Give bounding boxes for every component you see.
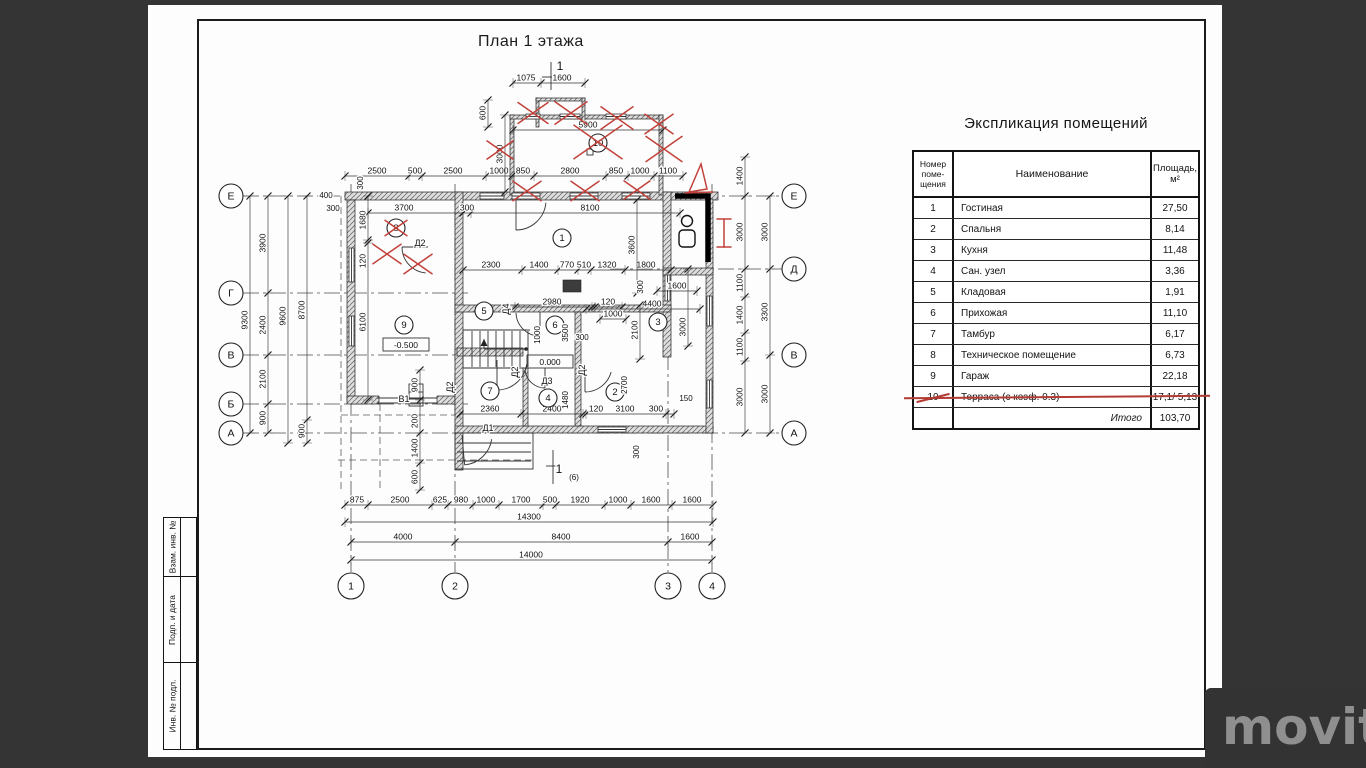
svg-text:1320: 1320 xyxy=(598,260,617,270)
svg-text:4400: 4400 xyxy=(643,299,662,309)
room-area-cell: 1,91 xyxy=(1152,282,1198,302)
svg-text:120: 120 xyxy=(601,297,615,307)
room-area-cell: 6,73 xyxy=(1152,345,1198,365)
room-area-cell: 27,50 xyxy=(1152,198,1198,218)
svg-text:Д4: Д4 xyxy=(501,303,511,314)
svg-text:2400: 2400 xyxy=(258,315,268,334)
room-table: Номер поме- щенияНаименованиеПлощадь, м²… xyxy=(912,150,1200,430)
svg-text:300: 300 xyxy=(636,280,645,294)
table-row: 4Сан. узел3,36 xyxy=(914,261,1198,282)
room-name-cell: Кухня xyxy=(954,240,1152,260)
svg-text:Г: Г xyxy=(228,288,234,300)
svg-text:9600: 9600 xyxy=(278,306,288,325)
svg-text:2: 2 xyxy=(452,581,458,593)
room-area-cell: 11,10 xyxy=(1152,303,1198,323)
svg-text:Д2: Д2 xyxy=(510,366,520,377)
svg-text:120: 120 xyxy=(358,254,368,268)
room-number-cell: 6 xyxy=(914,303,954,323)
svg-text:1: 1 xyxy=(557,59,564,73)
table-row: 6Прихожая11,10 xyxy=(914,303,1198,324)
svg-text:600: 600 xyxy=(410,470,420,484)
svg-text:3900: 3900 xyxy=(258,233,268,252)
svg-text:300: 300 xyxy=(460,203,474,213)
room-name-cell: Кладовая xyxy=(954,282,1152,302)
svg-text:4000: 4000 xyxy=(394,532,413,542)
room-name-cell: Спальня xyxy=(954,219,1152,239)
svg-text:Д2: Д2 xyxy=(577,364,587,375)
room-table-title: Экспликация помещений xyxy=(912,115,1200,132)
table-header-area: Площадь, м² xyxy=(1152,152,1198,196)
svg-text:500: 500 xyxy=(408,166,422,176)
svg-text:3000: 3000 xyxy=(735,222,745,241)
svg-text:1000: 1000 xyxy=(604,309,623,319)
svg-text:В: В xyxy=(790,350,797,362)
room-name-cell: Прихожая xyxy=(954,303,1152,323)
svg-text:3700: 3700 xyxy=(395,203,414,213)
svg-text:1920: 1920 xyxy=(571,495,590,505)
table-row: 8Техническое помещение6,73 xyxy=(914,345,1198,366)
svg-text:8700: 8700 xyxy=(297,300,307,319)
svg-text:1100: 1100 xyxy=(659,166,678,176)
svg-text:900: 900 xyxy=(297,424,307,438)
svg-text:1600: 1600 xyxy=(553,73,572,83)
room-number-cell: 5 xyxy=(914,282,954,302)
svg-text:14000: 14000 xyxy=(519,550,543,560)
table-row: 9Гараж22,18 xyxy=(914,366,1198,387)
svg-text:2500: 2500 xyxy=(444,166,463,176)
total-empty-cell xyxy=(914,408,954,428)
svg-text:1: 1 xyxy=(348,581,354,593)
svg-text:1000: 1000 xyxy=(533,326,542,344)
svg-text:1400: 1400 xyxy=(410,438,420,457)
svg-text:2700: 2700 xyxy=(620,376,629,394)
svg-text:2360: 2360 xyxy=(481,404,500,414)
svg-text:8100: 8100 xyxy=(581,203,600,213)
table-total-row: Итого103,70 xyxy=(914,408,1198,428)
room-number-cell: 7 xyxy=(914,324,954,344)
svg-text:1600: 1600 xyxy=(683,495,702,505)
svg-text:1: 1 xyxy=(556,462,563,476)
watermark-text: movita xyxy=(1222,698,1366,756)
total-label-cell: Итого xyxy=(954,408,1152,428)
svg-text:6100: 6100 xyxy=(358,312,368,331)
svg-text:2100: 2100 xyxy=(630,320,640,339)
svg-text:625: 625 xyxy=(433,495,447,505)
svg-text:1600: 1600 xyxy=(642,495,661,505)
svg-text:3600: 3600 xyxy=(627,235,637,254)
svg-text:3000: 3000 xyxy=(735,387,745,406)
svg-text:3000: 3000 xyxy=(760,384,770,403)
svg-text:А: А xyxy=(790,428,797,440)
room-number-cell: 3 xyxy=(914,240,954,260)
svg-text:2500: 2500 xyxy=(368,166,387,176)
svg-text:200: 200 xyxy=(410,414,420,428)
room-area-cell: 6,17 xyxy=(1152,324,1198,344)
total-value-cell: 103,70 xyxy=(1152,408,1198,428)
svg-text:3300: 3300 xyxy=(760,302,770,321)
svg-text:Д2: Д2 xyxy=(414,238,425,248)
svg-text:В: В xyxy=(227,350,234,362)
svg-text:Д: Д xyxy=(790,264,797,276)
svg-text:0.000: 0.000 xyxy=(539,357,561,367)
svg-text:1075: 1075 xyxy=(517,73,536,83)
svg-text:3100: 3100 xyxy=(616,404,635,414)
svg-text:2: 2 xyxy=(612,387,617,398)
svg-text:1100: 1100 xyxy=(735,274,745,293)
svg-text:1700: 1700 xyxy=(512,495,531,505)
viewer-background: Взам. инв. № Подп. и дата Инв. № подл. 1… xyxy=(0,0,1366,768)
svg-text:1100: 1100 xyxy=(735,338,745,357)
svg-text:1600: 1600 xyxy=(668,281,687,291)
svg-text:Д2: Д2 xyxy=(445,381,455,392)
svg-text:6: 6 xyxy=(552,320,557,331)
room-area-cell: 17,1/ 5,13 xyxy=(1152,387,1198,407)
svg-text:А: А xyxy=(227,428,234,440)
svg-text:1: 1 xyxy=(559,233,564,244)
svg-text:1000: 1000 xyxy=(609,495,628,505)
room-area-cell: 3,36 xyxy=(1152,261,1198,281)
room-name-cell: Гараж xyxy=(954,366,1152,386)
svg-text:5: 5 xyxy=(481,306,486,317)
svg-text:3000: 3000 xyxy=(760,222,770,241)
svg-text:1680: 1680 xyxy=(358,210,368,229)
svg-text:980: 980 xyxy=(454,495,468,505)
svg-text:3000: 3000 xyxy=(678,317,688,336)
svg-text:2100: 2100 xyxy=(258,369,268,388)
svg-text:300: 300 xyxy=(632,445,641,459)
room-number-cell: 9 xyxy=(914,366,954,386)
svg-text:2980: 2980 xyxy=(543,297,562,307)
room-name-cell: Тамбур xyxy=(954,324,1152,344)
svg-text:-0.500: -0.500 xyxy=(394,340,418,350)
table-header-name: Наименование xyxy=(954,152,1152,196)
room-number-cell: 8 xyxy=(914,345,954,365)
svg-text:Е: Е xyxy=(227,191,234,203)
svg-text:1000: 1000 xyxy=(490,166,509,176)
svg-text:1000: 1000 xyxy=(477,495,496,505)
room-name-cell: Техническое помещение xyxy=(954,345,1152,365)
svg-text:4: 4 xyxy=(709,581,715,593)
svg-text:3500: 3500 xyxy=(561,324,570,342)
svg-text:1400: 1400 xyxy=(735,166,745,185)
table-header-number: Номер поме- щения xyxy=(914,152,954,196)
svg-text:770: 770 xyxy=(560,260,574,270)
svg-text:В1: В1 xyxy=(398,394,409,404)
svg-text:500: 500 xyxy=(543,495,557,505)
svg-text:4: 4 xyxy=(545,393,550,404)
svg-text:(6): (6) xyxy=(569,473,579,482)
svg-text:400: 400 xyxy=(319,191,333,200)
svg-text:1400: 1400 xyxy=(735,305,745,324)
room-area-cell: 22,18 xyxy=(1152,366,1198,386)
svg-text:850: 850 xyxy=(609,166,623,176)
svg-text:2500: 2500 xyxy=(391,495,410,505)
table-row: 1Гостиная27,50 xyxy=(914,198,1198,219)
svg-text:Е: Е xyxy=(790,191,797,203)
table-row: 7Тамбур6,17 xyxy=(914,324,1198,345)
svg-text:150: 150 xyxy=(679,394,693,403)
svg-text:8400: 8400 xyxy=(552,532,571,542)
svg-text:875: 875 xyxy=(350,495,364,505)
table-row: 3Кухня11,48 xyxy=(914,240,1198,261)
svg-text:2800: 2800 xyxy=(561,166,580,176)
svg-text:1600: 1600 xyxy=(681,532,700,542)
svg-text:900: 900 xyxy=(258,411,268,425)
table-header-row: Номер поме- щенияНаименованиеПлощадь, м² xyxy=(914,152,1198,198)
svg-text:Д3: Д3 xyxy=(541,376,552,386)
svg-text:Д1: Д1 xyxy=(482,423,493,433)
svg-text:120: 120 xyxy=(589,404,603,414)
svg-text:510: 510 xyxy=(577,260,591,270)
plan-title: План 1 этажа xyxy=(478,33,584,51)
room-area-cell: 11,48 xyxy=(1152,240,1198,260)
svg-text:3: 3 xyxy=(655,317,660,328)
table-row: 2Спальня8,14 xyxy=(914,219,1198,240)
svg-text:300: 300 xyxy=(575,333,589,342)
room-number-cell: 4 xyxy=(914,261,954,281)
svg-text:1400: 1400 xyxy=(530,260,549,270)
room-name-cell: Гостиная xyxy=(954,198,1152,218)
svg-text:1000: 1000 xyxy=(631,166,650,176)
svg-text:Б: Б xyxy=(228,399,235,411)
watermark-badge: movita xyxy=(1205,688,1366,768)
svg-text:2300: 2300 xyxy=(482,260,501,270)
svg-text:1480: 1480 xyxy=(561,391,570,409)
room-number-cell: 2 xyxy=(914,219,954,239)
svg-text:1800: 1800 xyxy=(637,260,656,270)
svg-text:850: 850 xyxy=(516,166,530,176)
svg-text:9: 9 xyxy=(401,320,406,331)
table-row: 10Терраса (с коэф. 0.3)17,1/ 5,13 xyxy=(914,387,1198,408)
svg-text:300: 300 xyxy=(649,404,663,414)
room-name-cell: Сан. узел xyxy=(954,261,1152,281)
svg-text:14300: 14300 xyxy=(517,512,541,522)
room-number-cell: 1 xyxy=(914,198,954,218)
svg-text:900: 900 xyxy=(410,378,420,392)
svg-text:9300: 9300 xyxy=(240,310,250,329)
svg-text:600: 600 xyxy=(478,106,488,120)
room-area-cell: 8,14 xyxy=(1152,219,1198,239)
svg-text:300: 300 xyxy=(356,176,365,190)
svg-text:3: 3 xyxy=(665,581,671,593)
svg-text:300: 300 xyxy=(326,204,340,213)
svg-text:7: 7 xyxy=(487,386,492,397)
table-row: 5Кладовая1,91 xyxy=(914,282,1198,303)
